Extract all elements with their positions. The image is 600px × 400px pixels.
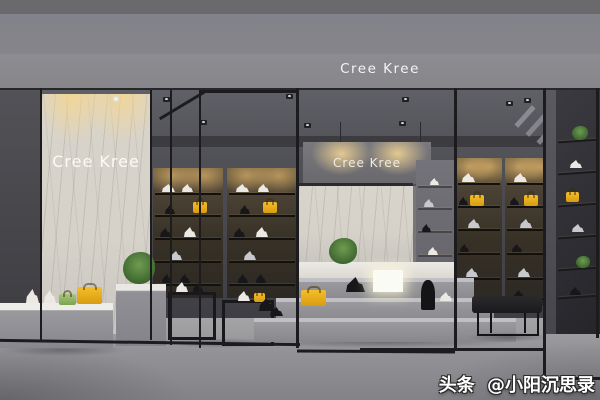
yellow-handbag	[263, 202, 277, 213]
shelf-board	[155, 193, 221, 195]
yellow-handbag	[254, 293, 265, 302]
shelf-board	[458, 229, 500, 231]
ceiling-exterior-strip	[0, 0, 600, 15]
frame-post	[454, 88, 457, 350]
sign-hanging-rod	[340, 122, 341, 142]
storefront-scene: Cree Kree Cree Kree	[0, 0, 600, 400]
potted-plant	[576, 256, 590, 268]
bench-leg	[537, 313, 539, 336]
yellow-handbag	[470, 195, 484, 206]
shelf-board	[229, 261, 295, 263]
brand-logo-fascia: Cree Kree	[300, 61, 460, 77]
display-pedestal	[116, 284, 166, 346]
right-column	[546, 88, 556, 334]
ceiling-lamp-dot	[113, 96, 119, 102]
green-handbag	[59, 294, 76, 305]
shelf-board	[418, 208, 452, 210]
yellow-handbag	[77, 287, 102, 304]
bench-stretcher	[477, 334, 539, 336]
shelf-board	[155, 215, 221, 217]
frame-bottom-rail	[360, 348, 544, 351]
shelf-board	[155, 238, 221, 240]
bench-leg	[490, 313, 492, 333]
recessed-spotlight	[399, 121, 406, 126]
yellow-handbag	[524, 195, 538, 206]
frame-post	[199, 90, 201, 348]
bench-cushion	[472, 296, 542, 313]
frame-post	[596, 88, 599, 338]
brand-logo-center-sign: Cree Kree	[303, 156, 431, 170]
potted-plant	[329, 238, 357, 264]
watermark: 头条 @小阳沉思录	[439, 371, 595, 397]
shelf-board	[155, 261, 221, 263]
recessed-spotlight	[163, 97, 170, 102]
potted-plant	[572, 126, 588, 140]
frame-post	[150, 90, 152, 340]
watermark-handle: @小阳沉思录	[487, 375, 595, 396]
shelf-board	[418, 255, 452, 257]
shelf-board	[229, 238, 295, 240]
yellow-handbag	[301, 290, 326, 306]
recessed-spotlight	[402, 97, 409, 102]
recessed-spotlight	[200, 120, 207, 125]
shelf-board	[229, 215, 295, 217]
watermark-platform: 头条	[439, 375, 475, 396]
recessed-spotlight	[524, 98, 531, 103]
recessed-spotlight	[506, 101, 513, 106]
shelf-board	[458, 253, 500, 255]
frame-post	[543, 88, 546, 382]
shelf-board	[418, 186, 452, 188]
illuminated-display-cube	[373, 270, 403, 292]
black-boot-display	[421, 280, 435, 310]
brand-logo-left-panel: Cree Kree	[42, 152, 150, 171]
shelf-board	[229, 193, 295, 195]
sign-hanging-rod	[420, 122, 421, 142]
shelf-board	[458, 206, 500, 208]
shelf-board	[458, 183, 500, 185]
storefront-top-frame	[0, 88, 600, 90]
frame-beam	[199, 90, 297, 93]
shelf-board	[229, 284, 295, 286]
frame-post	[296, 88, 299, 348]
upper-wall-band	[0, 14, 600, 54]
metal-frame-table	[168, 292, 216, 340]
frame-post	[40, 88, 42, 340]
frame-post	[170, 90, 172, 345]
yellow-handbag	[566, 192, 579, 202]
bench-leg	[524, 313, 526, 333]
recessed-spotlight	[304, 123, 311, 128]
bench-leg	[477, 313, 479, 336]
recessed-spotlight	[286, 94, 293, 99]
